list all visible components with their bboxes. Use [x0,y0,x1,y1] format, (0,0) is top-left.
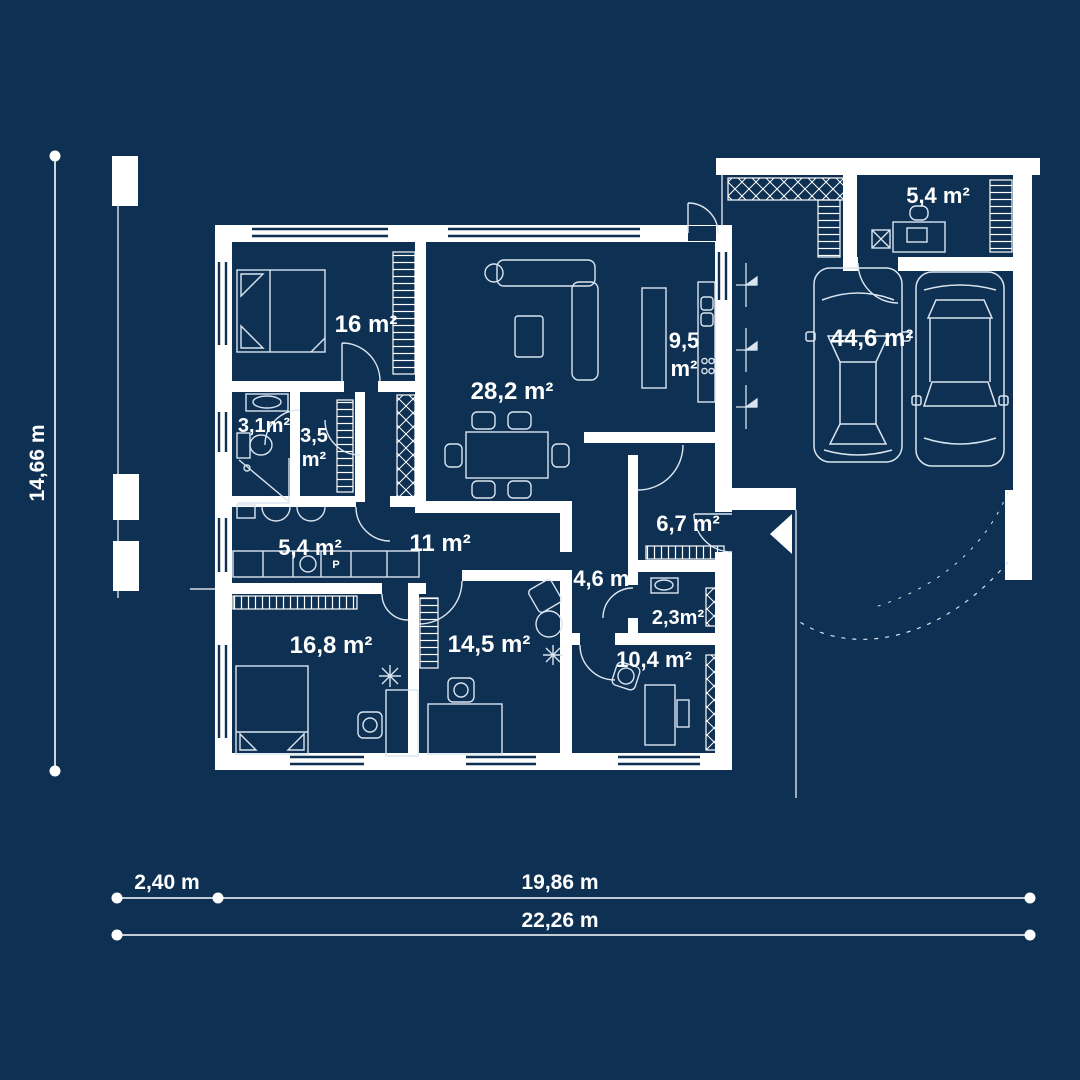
fence-post [113,474,139,520]
bed-icon [237,270,325,352]
side-table-icon [536,611,562,637]
floor-plan: 14,66 m 2,40 m 19,86 m 22,26 m [0,0,1080,1080]
sink-icon [701,297,713,310]
wall-kitchen-bottom [584,432,732,443]
wardrobe-bedroom2 [233,596,357,609]
washbasin-icon [246,394,288,411]
courtyard-door-gap [688,226,716,241]
washing-machine-label: P [332,559,339,571]
fence-post [112,156,138,206]
kitchen-island-icon [642,288,666,388]
trellis-hatch [728,178,846,200]
door-office [580,645,615,680]
dimension-label-left-width: 2,40 m [134,871,199,894]
wardrobe-closet [337,400,353,492]
garage-wall-right [1013,158,1032,490]
wall-office-top [572,633,580,645]
room-label-office: 10,4 m² [616,647,692,672]
dimension-label-total-width: 22,26 m [521,909,598,932]
wall-entry-wc [638,560,732,572]
wall-corridor-entry [628,455,638,572]
wall-hall-corridor [560,513,572,552]
section-marker-icon [736,263,757,307]
garage [716,158,1040,639]
wall-living-bottom [415,501,572,513]
section-marker-icon [736,385,757,429]
dimension-dot [50,151,61,162]
room-label-bedroom2: 16,8 m² [290,632,373,659]
door-bedroom2 [382,594,408,620]
desk-icon [645,685,689,745]
wall-left [215,225,232,770]
entrance-arrow-icon [770,514,792,554]
room-label-corridor: 4,6 m² [573,566,637,591]
wall-bottom [215,753,732,770]
armchair-icon [515,316,543,357]
dimension-dot [112,930,123,941]
room-label-garage-storage: 5,4 m² [906,183,970,208]
garage-wall-right [1005,490,1032,580]
shelf-hatch [818,200,840,257]
plant-icon [543,645,563,665]
section-markers [736,263,757,429]
chair-icon [527,578,563,614]
wall-top [215,225,732,242]
room-label-kitchen: m² [671,356,698,381]
stove-icon [702,358,714,373]
desk-icon [428,678,502,754]
dimension-dot [50,766,61,777]
room-label-wc: 2,3m² [652,607,705,629]
room-label-closet: m² [302,449,327,471]
wardrobe-entry [646,546,724,559]
porch-wall [722,488,796,510]
wall-bedroom1-right [415,242,426,392]
room-label-utility: 5,4 m² [278,535,342,560]
dimension-dot [112,893,123,904]
wall-bedroom3-top [462,570,572,581]
room-label-closet: 3,5 [300,425,328,447]
room-label-garage: 44,6 m² [831,325,914,352]
section-marker-icon [736,328,757,372]
terrace-edge [112,156,215,598]
dimension-dot [1025,930,1036,941]
room-label-kitchen: 9,5 [669,328,700,353]
door-wc [603,588,633,618]
room-label-bathroom: 3,1m² [238,415,291,437]
chair-icon [910,206,928,220]
dimension-dot [213,893,224,904]
room-label-living: 28,2 m² [471,378,554,405]
wall-corridor-living [415,381,426,507]
car-icon [806,268,910,462]
car-icon [912,272,1008,466]
wardrobe-wc [706,588,724,626]
plant-icon [379,665,401,687]
entrance [722,488,796,798]
room-label-entry: 6,7 m² [656,511,720,536]
kitchen-counter-icon [698,282,715,402]
floor-plan-drawing: 14,66 m 2,40 m 19,86 m 22,26 m [0,0,1080,1080]
door-utility [356,507,390,541]
wall-bedroom1-bottom [232,381,344,392]
wall-closet-corridor [355,392,365,502]
washbasin-icon [651,578,678,593]
driveway-path [800,562,1008,639]
storage-desk-icon [872,206,945,252]
garage-wall-top [716,158,1040,175]
dimension-label-height: 14,66 m [26,424,49,501]
door-bedroom1 [342,343,380,381]
driveway-path [872,492,1008,608]
dimension-dot [1025,893,1036,904]
room-label-hallway: 11 m² [409,530,470,557]
wall-wc-left [628,618,638,633]
wall-bath-closet [290,392,300,502]
sofa-icon [485,260,598,380]
wall-office-top [615,633,732,645]
room-label-bedroom1: 16 m² [335,311,398,338]
wall-bedroom3-office [560,581,572,753]
wall-bedroom2-top [408,583,426,594]
wardrobe-office [706,655,724,750]
fence-post [113,541,139,591]
door-entry-corridor [638,445,683,490]
dimension-label-right-width: 19,86 m [521,871,598,894]
storage-shelf-hatch [990,180,1012,252]
wardrobe-bedroom3 [420,598,438,668]
bed-icon [236,666,308,754]
room-label-bedroom3: 14,5 m² [448,631,531,658]
dining-table-icon [445,412,569,498]
utility-sinks-icon [237,505,325,521]
wardrobe-corridor [397,395,415,501]
sink-icon [701,313,713,326]
wall-bedroom2-top [232,583,382,594]
